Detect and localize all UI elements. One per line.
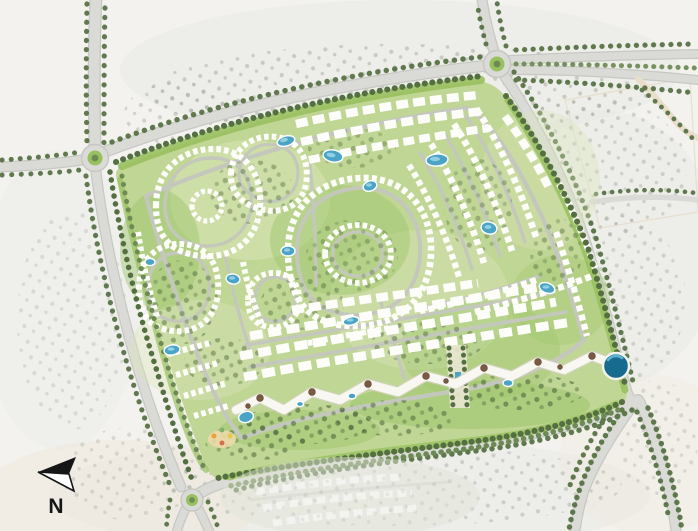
lagoon-pool — [603, 353, 629, 379]
master-plan-canvas: N — [0, 0, 698, 531]
roundabout-southwest — [181, 489, 203, 511]
master-plan-svg: N — [0, 0, 698, 531]
roundabout-northwest — [82, 145, 109, 172]
site-parcel — [110, 76, 629, 486]
pond — [145, 258, 155, 265]
roundabout-northeast — [484, 51, 511, 78]
north-label: N — [48, 495, 63, 518]
pond — [281, 246, 295, 256]
